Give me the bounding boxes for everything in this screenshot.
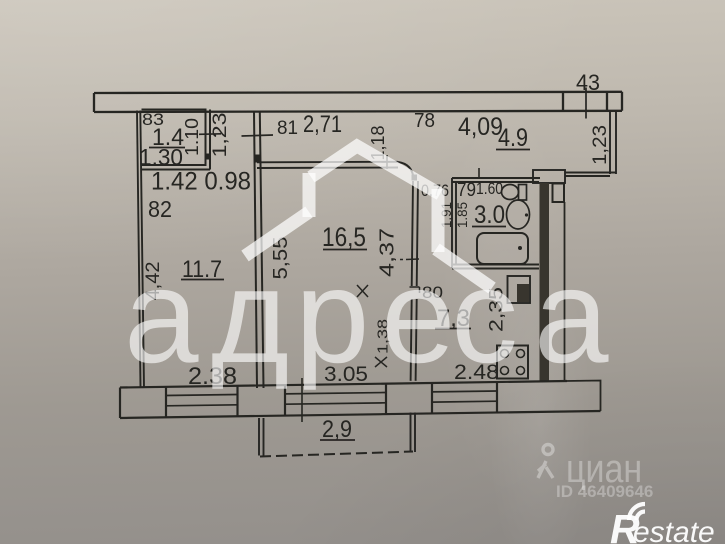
svg-text:4,09: 4,09 — [458, 113, 503, 141]
svg-text:78: 78 — [414, 110, 435, 132]
svg-text:адреса: адреса — [124, 242, 609, 391]
svg-text:1,23: 1,23 — [590, 125, 611, 165]
svg-text:1.60: 1.60 — [476, 179, 503, 198]
svg-text:1.10: 1.10 — [182, 118, 202, 156]
svg-text:79: 79 — [457, 180, 476, 201]
svg-text:2,9: 2,9 — [322, 416, 352, 443]
svg-text:81: 81 — [277, 118, 298, 139]
svg-text:2,71: 2,71 — [303, 111, 342, 138]
svg-text:43: 43 — [576, 70, 600, 95]
svg-text:1.42 0.98: 1.42 0.98 — [151, 168, 251, 196]
svg-text:ID 46409646: ID 46409646 — [556, 482, 653, 501]
svg-text:3.0: 3.0 — [474, 201, 505, 229]
svg-text:1,23: 1,23 — [210, 113, 231, 158]
svg-text:estate: estate — [633, 516, 715, 544]
svg-text:4.9: 4.9 — [498, 124, 528, 152]
svg-text:82: 82 — [148, 196, 172, 222]
svg-text:1.85: 1.85 — [454, 202, 470, 228]
svg-text:1.30: 1.30 — [139, 144, 183, 170]
